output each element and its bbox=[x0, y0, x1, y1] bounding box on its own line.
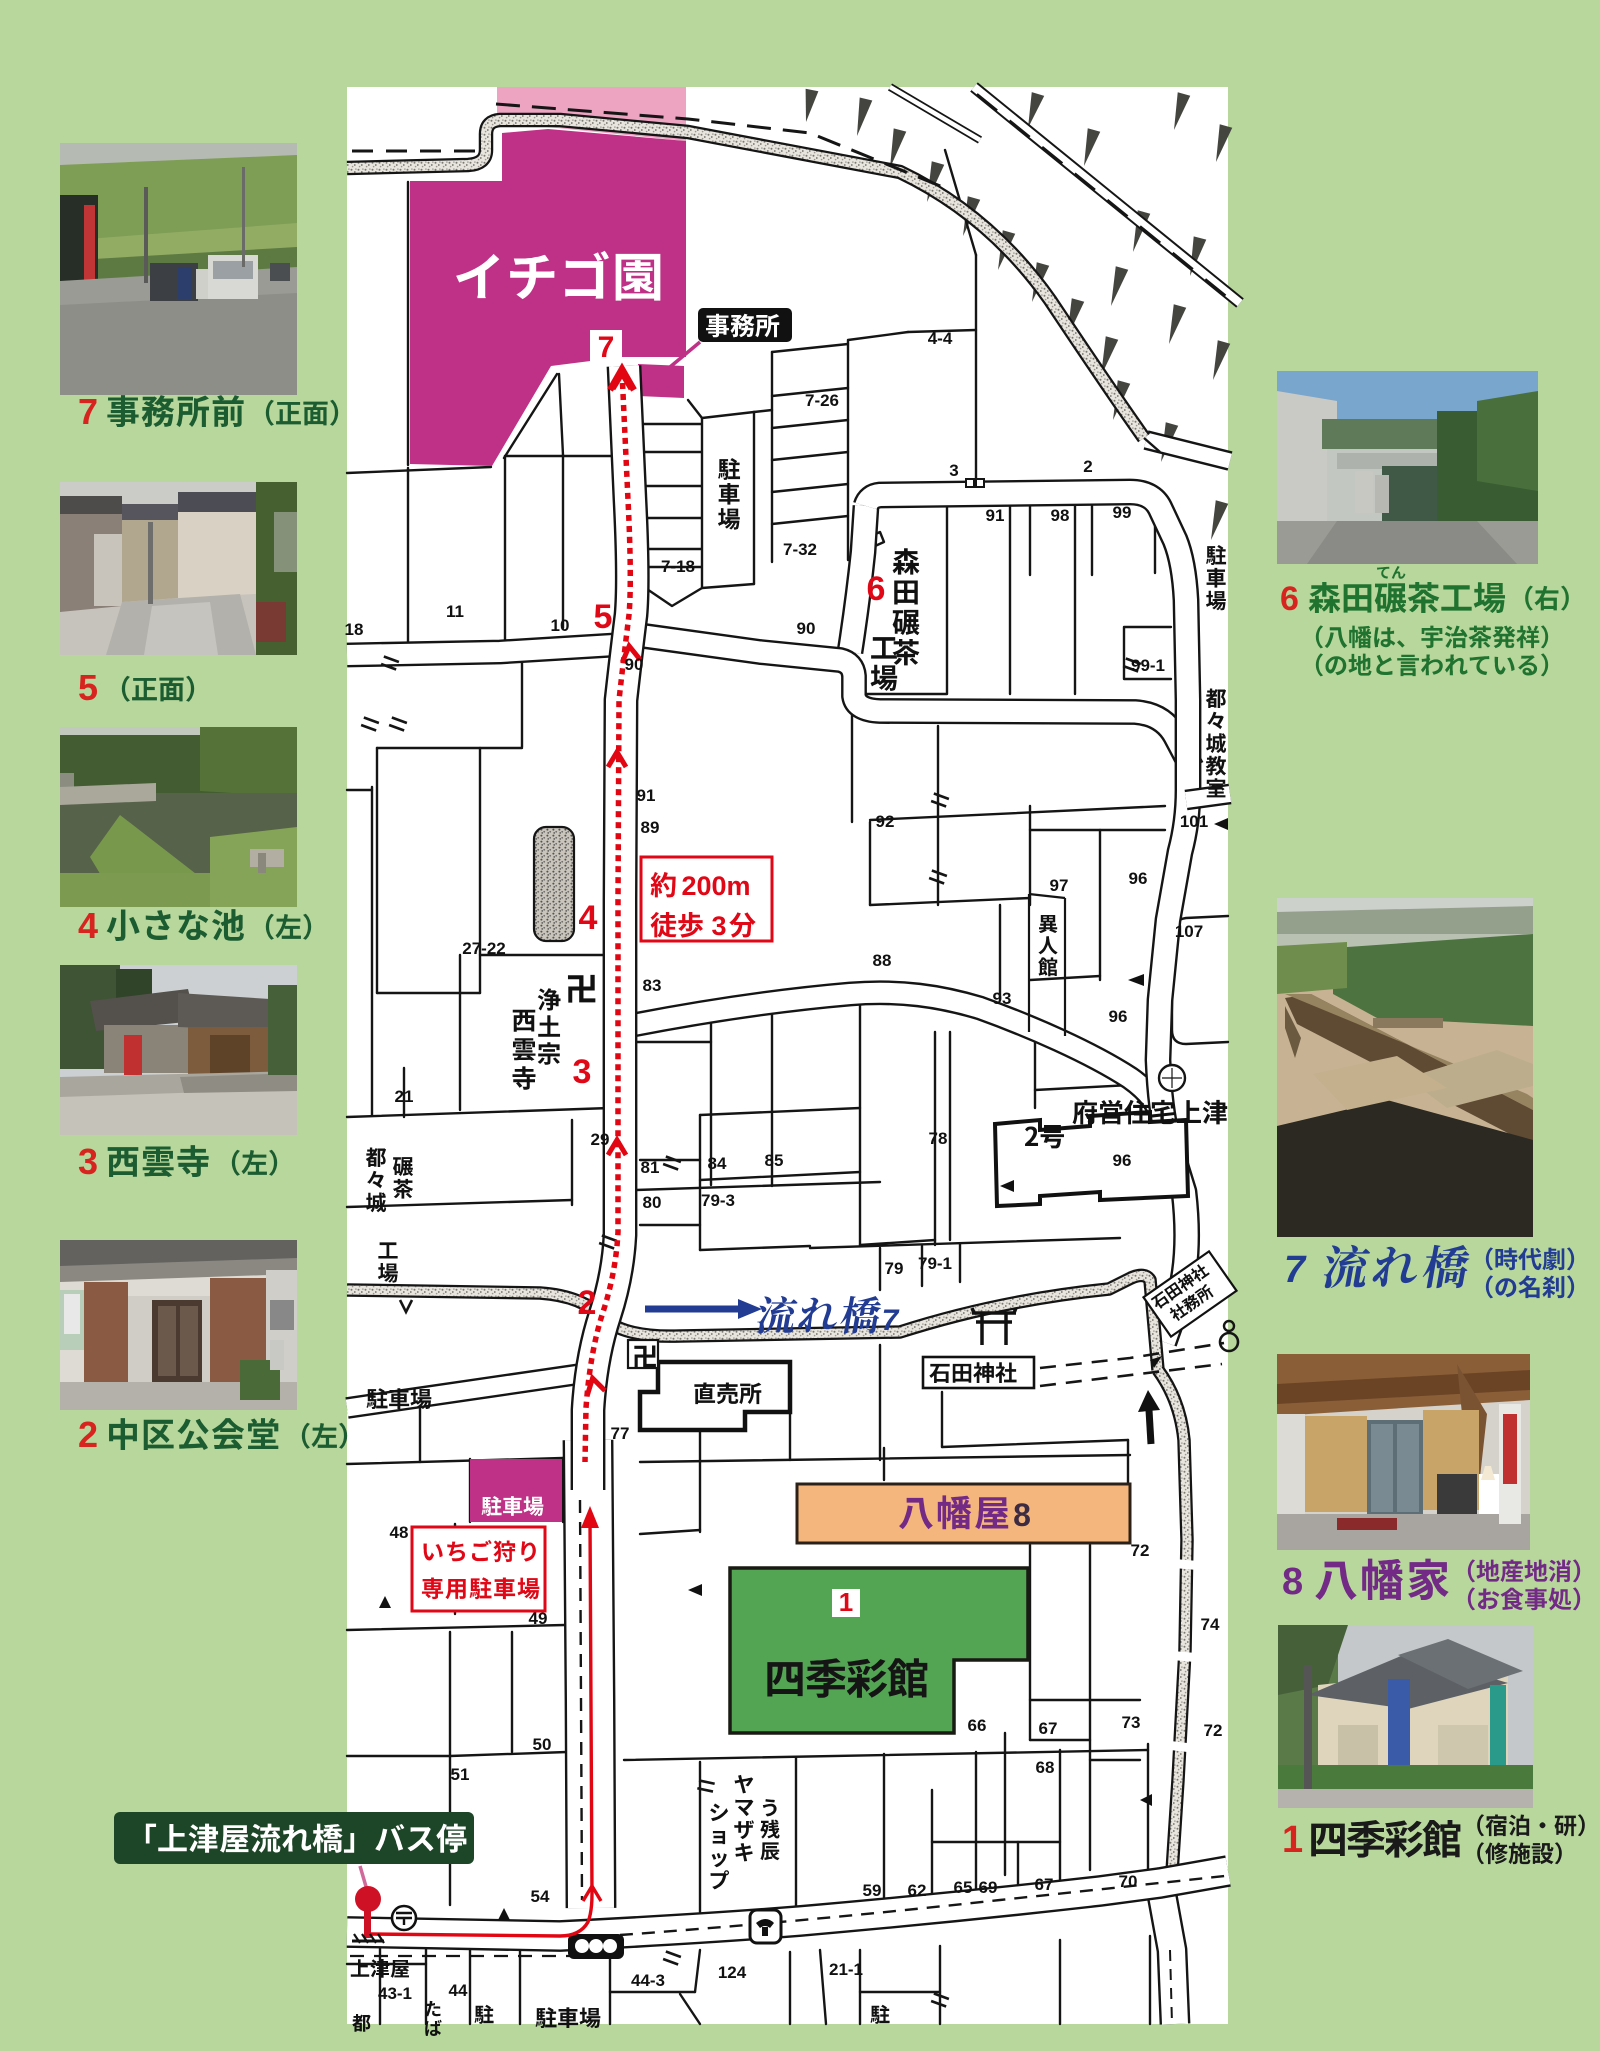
svg-text:59: 59 bbox=[863, 1881, 882, 1900]
svg-text:72: 72 bbox=[1204, 1721, 1223, 1740]
svg-text:200m: 200m bbox=[681, 871, 750, 901]
svg-text:96: 96 bbox=[1109, 1007, 1128, 1026]
svg-text:79-3: 79-3 bbox=[701, 1191, 735, 1210]
svg-text:4: 4 bbox=[78, 905, 98, 946]
svg-text:80: 80 bbox=[643, 1193, 662, 1212]
svg-text:77: 77 bbox=[611, 1424, 630, 1443]
svg-text:79-1: 79-1 bbox=[918, 1254, 952, 1273]
svg-text:8: 8 bbox=[1282, 1561, 1303, 1603]
svg-text:99: 99 bbox=[1113, 503, 1132, 522]
svg-text:44-3: 44-3 bbox=[631, 1971, 665, 1990]
svg-text:7: 7 bbox=[1284, 1249, 1307, 1291]
svg-text:8: 8 bbox=[1013, 1497, 1031, 1533]
svg-text:73: 73 bbox=[1122, 1713, 1141, 1732]
svg-text:5: 5 bbox=[594, 598, 613, 636]
svg-text:7: 7 bbox=[78, 391, 98, 432]
svg-text:50: 50 bbox=[533, 1735, 552, 1754]
svg-text:4: 4 bbox=[579, 899, 598, 937]
svg-text:92: 92 bbox=[876, 812, 895, 831]
svg-text:78: 78 bbox=[929, 1129, 948, 1148]
svg-text:62: 62 bbox=[908, 1881, 927, 1900]
svg-text:1: 1 bbox=[839, 1587, 853, 1617]
svg-text:21-1: 21-1 bbox=[829, 1960, 863, 1979]
svg-text:67: 67 bbox=[1035, 1875, 1054, 1894]
svg-text:68: 68 bbox=[1036, 1758, 1055, 1777]
svg-text:3: 3 bbox=[573, 1053, 592, 1091]
svg-text:2: 2 bbox=[578, 1284, 597, 1322]
svg-text:2: 2 bbox=[78, 1414, 98, 1455]
svg-text:98: 98 bbox=[1051, 506, 1070, 525]
svg-text:5: 5 bbox=[78, 667, 98, 708]
svg-text:69: 69 bbox=[979, 1878, 998, 1897]
svg-text:89: 89 bbox=[641, 818, 660, 837]
svg-text:18: 18 bbox=[345, 620, 364, 639]
svg-text:7: 7 bbox=[598, 331, 615, 364]
svg-text:88: 88 bbox=[873, 951, 892, 970]
svg-text:6: 6 bbox=[867, 570, 886, 608]
svg-text:65: 65 bbox=[954, 1878, 973, 1897]
svg-text:99-1: 99-1 bbox=[1131, 656, 1165, 675]
svg-text:21: 21 bbox=[395, 1087, 414, 1106]
svg-text:7-26: 7-26 bbox=[805, 391, 839, 410]
svg-text:43-1: 43-1 bbox=[378, 1984, 412, 2003]
svg-text:84: 84 bbox=[708, 1154, 727, 1173]
svg-text:72: 72 bbox=[1131, 1541, 1150, 1560]
svg-text:48: 48 bbox=[390, 1523, 409, 1542]
svg-text:51: 51 bbox=[451, 1765, 470, 1784]
svg-text:97: 97 bbox=[1050, 876, 1069, 895]
svg-text:7-32: 7-32 bbox=[783, 540, 817, 559]
svg-text:54: 54 bbox=[531, 1887, 550, 1906]
svg-text:124: 124 bbox=[718, 1963, 747, 1982]
svg-text:49: 49 bbox=[529, 1609, 548, 1628]
svg-text:81: 81 bbox=[641, 1158, 660, 1177]
svg-text:91: 91 bbox=[637, 786, 656, 805]
svg-text:29: 29 bbox=[591, 1130, 610, 1149]
svg-text:93: 93 bbox=[993, 989, 1012, 1008]
svg-text:7: 7 bbox=[882, 1304, 900, 1337]
svg-text:7-18: 7-18 bbox=[661, 557, 695, 576]
svg-text:90: 90 bbox=[625, 655, 644, 674]
svg-text:3: 3 bbox=[78, 1141, 98, 1182]
svg-text:79: 79 bbox=[885, 1259, 904, 1278]
svg-text:90: 90 bbox=[797, 619, 816, 638]
svg-text:10: 10 bbox=[551, 616, 570, 635]
svg-text:96: 96 bbox=[1129, 869, 1148, 888]
svg-text:83: 83 bbox=[643, 976, 662, 995]
svg-text:70: 70 bbox=[1119, 1872, 1138, 1891]
svg-text:1: 1 bbox=[1282, 1819, 1303, 1861]
svg-text:107: 107 bbox=[1175, 922, 1203, 941]
svg-text:66: 66 bbox=[968, 1716, 987, 1735]
svg-text:74: 74 bbox=[1201, 1615, 1220, 1634]
svg-text:3: 3 bbox=[711, 911, 726, 941]
svg-text:11: 11 bbox=[446, 602, 464, 621]
svg-text:2: 2 bbox=[1083, 457, 1092, 476]
svg-text:4-4: 4-4 bbox=[928, 329, 953, 348]
svg-text:27-22: 27-22 bbox=[462, 939, 505, 958]
svg-text:96: 96 bbox=[1113, 1151, 1132, 1170]
svg-text:101: 101 bbox=[1180, 812, 1208, 831]
svg-text:85: 85 bbox=[765, 1151, 784, 1170]
svg-text:6: 6 bbox=[1280, 580, 1299, 618]
svg-text:67: 67 bbox=[1039, 1719, 1058, 1738]
svg-text:44: 44 bbox=[449, 1981, 468, 2000]
svg-text:91: 91 bbox=[986, 506, 1005, 525]
svg-text:3: 3 bbox=[949, 461, 958, 480]
